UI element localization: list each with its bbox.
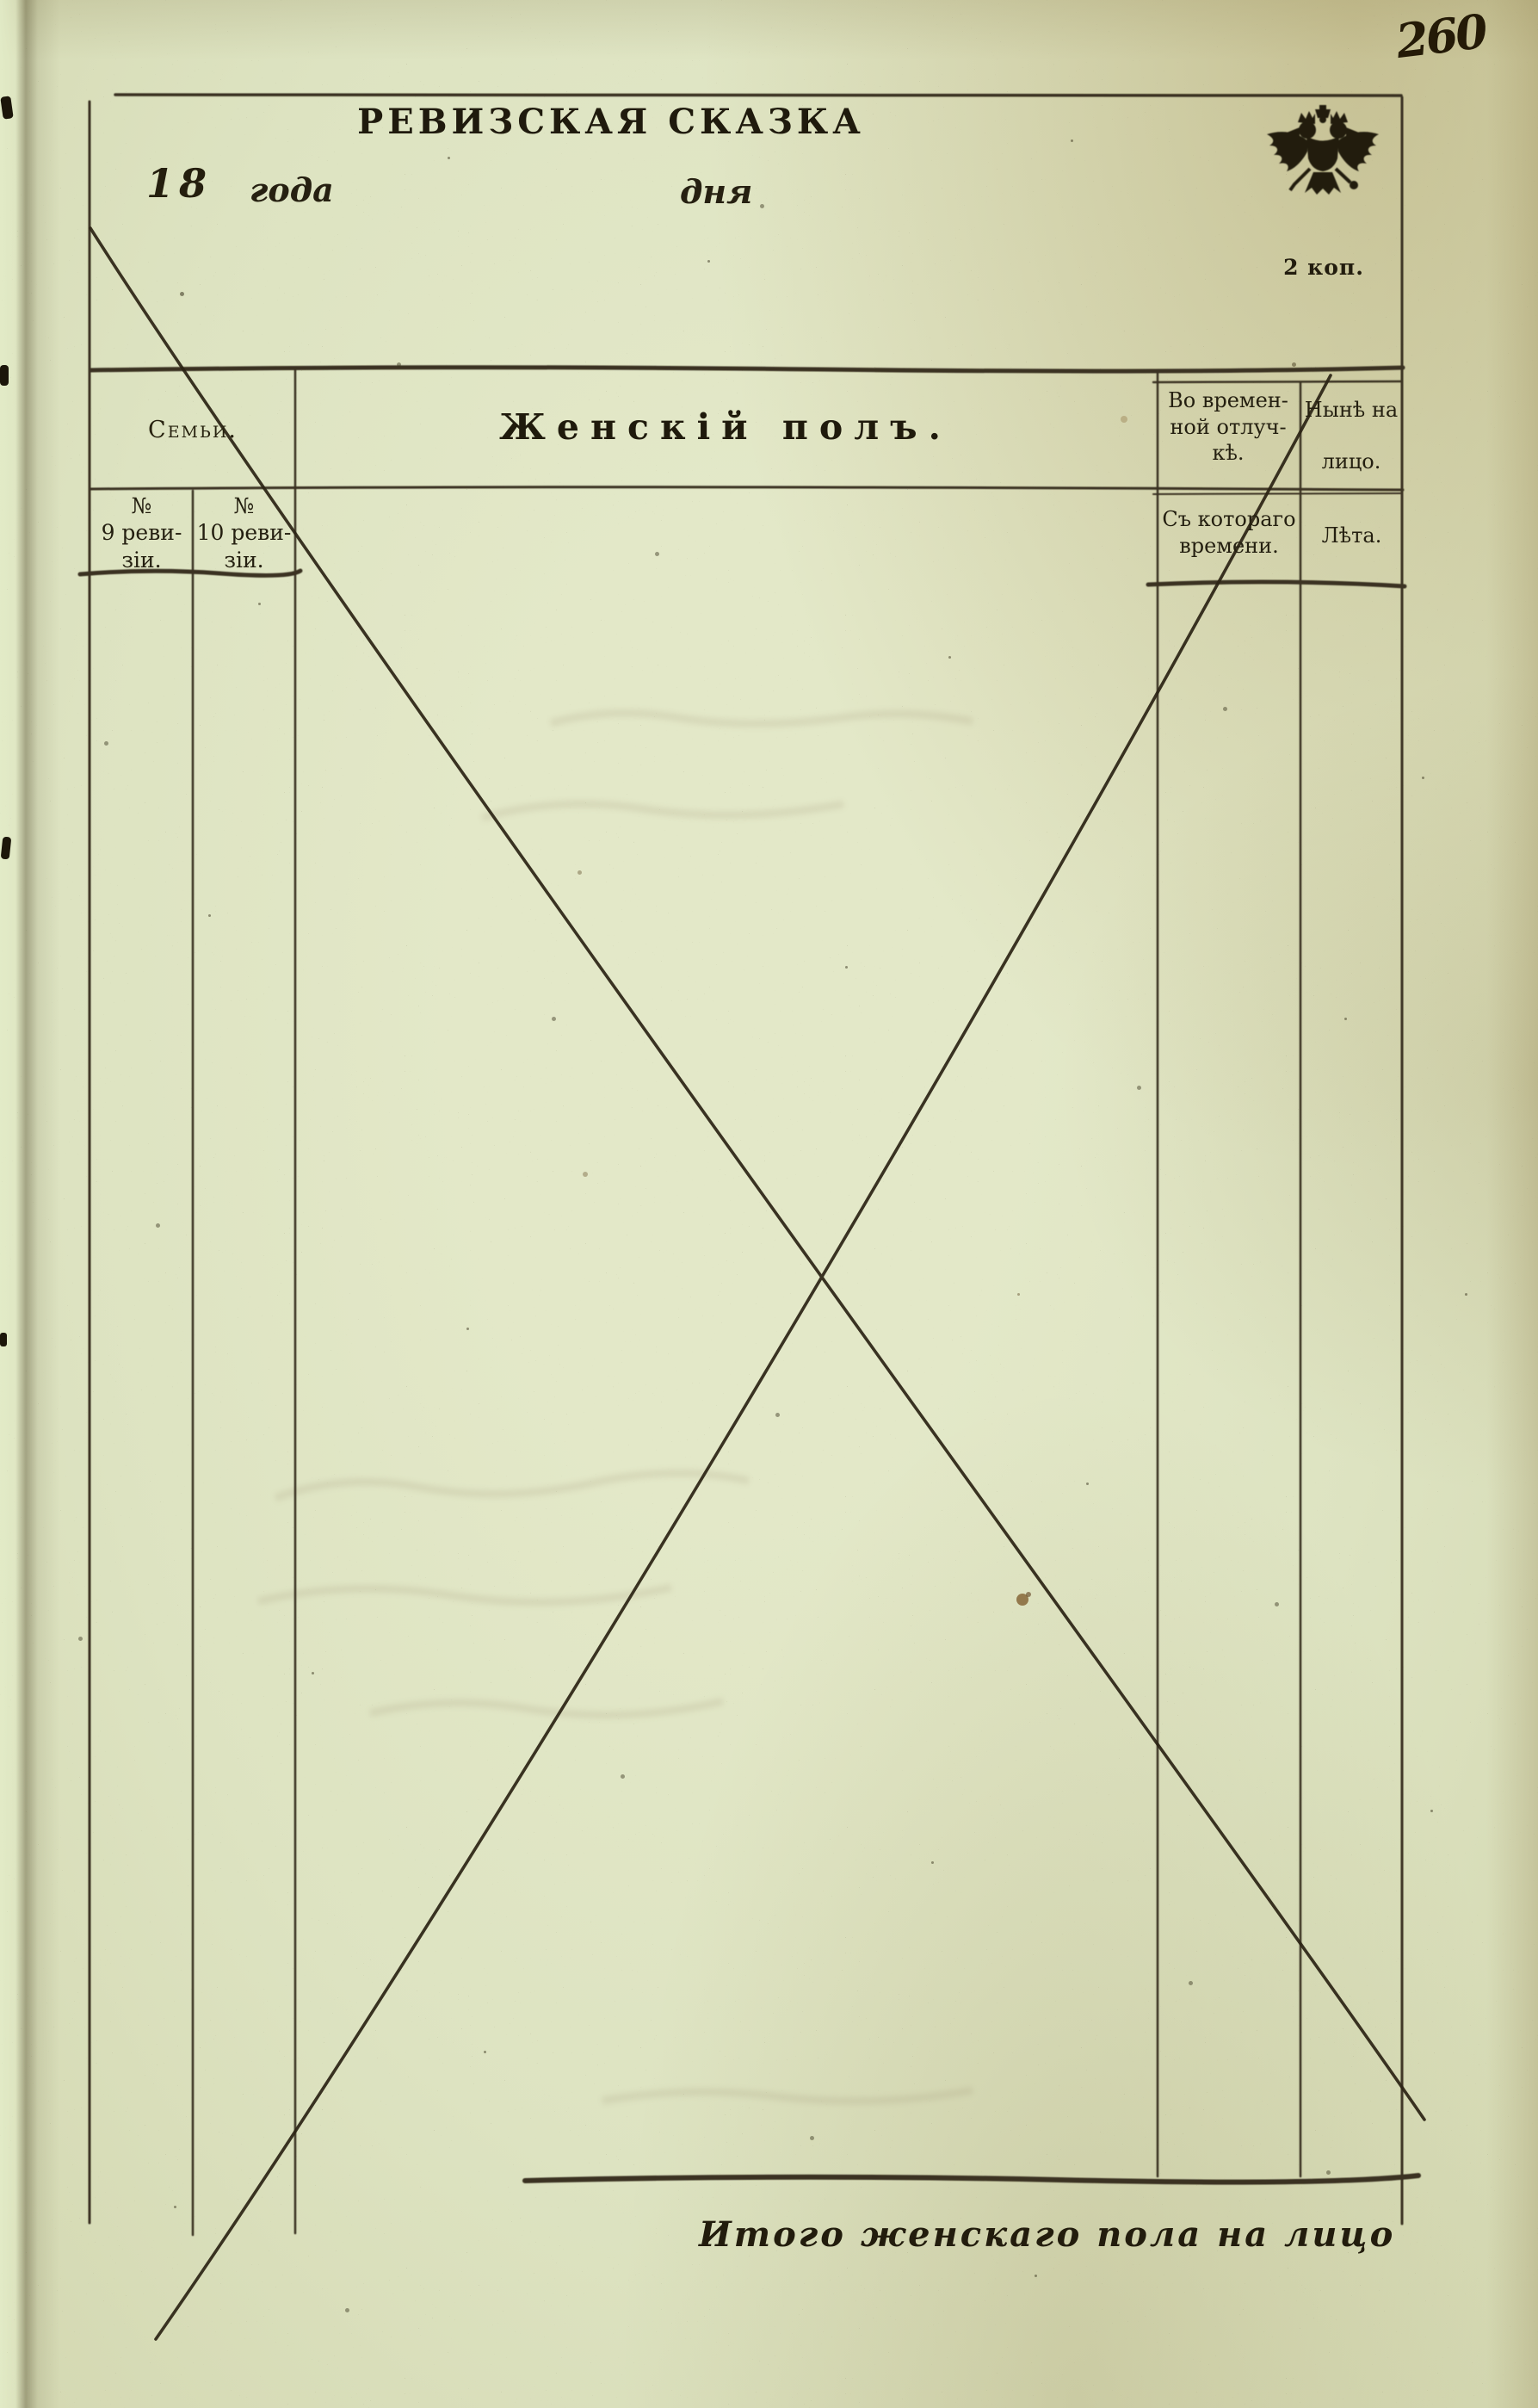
- stamp-price-label: 2 коп.: [1258, 255, 1389, 280]
- tenth-revision-line-2: 10 реви-: [193, 519, 295, 546]
- total-female-present-label: Итого женскаго пола на лицо: [699, 2214, 1395, 2255]
- form-lines-layer: [0, 0, 1538, 2408]
- temporary-absence-line-3: кѣ.: [1159, 440, 1297, 467]
- subheader-tenth-revision: № 10 реви- зіи.: [193, 492, 295, 573]
- temporary-absence-line-2: ной отлуч-: [1159, 414, 1297, 441]
- scanned-revision-list-page: 260 РЕВИЗСКАЯ СКАЗКА 18 года дня 2 коп. …: [0, 0, 1538, 2408]
- form-title: РЕВИЗСКАЯ СКАЗКА: [327, 102, 895, 142]
- ninth-revision-line-2: 9 реви-: [90, 519, 193, 546]
- ninth-revision-line-1: №: [90, 492, 193, 519]
- column-header-now-present-line-1: Нынѣ на: [1302, 398, 1400, 422]
- column-header-families: Семьи.: [90, 417, 295, 443]
- column-header-temporary-absence: Во времен- ной отлуч- кѣ.: [1159, 387, 1297, 467]
- ninth-revision-line-3: зіи.: [90, 547, 193, 573]
- day-word: дня: [680, 172, 752, 211]
- tenth-revision-line-3: зіи.: [193, 547, 295, 573]
- subheader-ninth-revision: № 9 реви- зіи.: [90, 492, 193, 573]
- tenth-revision-line-1: №: [193, 492, 295, 519]
- year-word: года: [250, 170, 334, 209]
- since-when-line-1: Съ котораго: [1158, 506, 1300, 533]
- year-prefix: 18: [146, 160, 212, 207]
- paper-speck-layer: [0, 0, 3, 3]
- subheader-years: Лѣта.: [1300, 523, 1403, 548]
- since-when-line-2: времени.: [1158, 533, 1300, 560]
- column-header-now-present-line-2: лицо.: [1302, 449, 1400, 474]
- column-header-female-sex: Женскій полъ.: [295, 406, 1156, 448]
- page-number-handwritten: 260: [1393, 3, 1488, 69]
- subheader-since-when: Съ котораго времени.: [1158, 506, 1300, 560]
- temporary-absence-line-1: Во времен-: [1159, 387, 1297, 414]
